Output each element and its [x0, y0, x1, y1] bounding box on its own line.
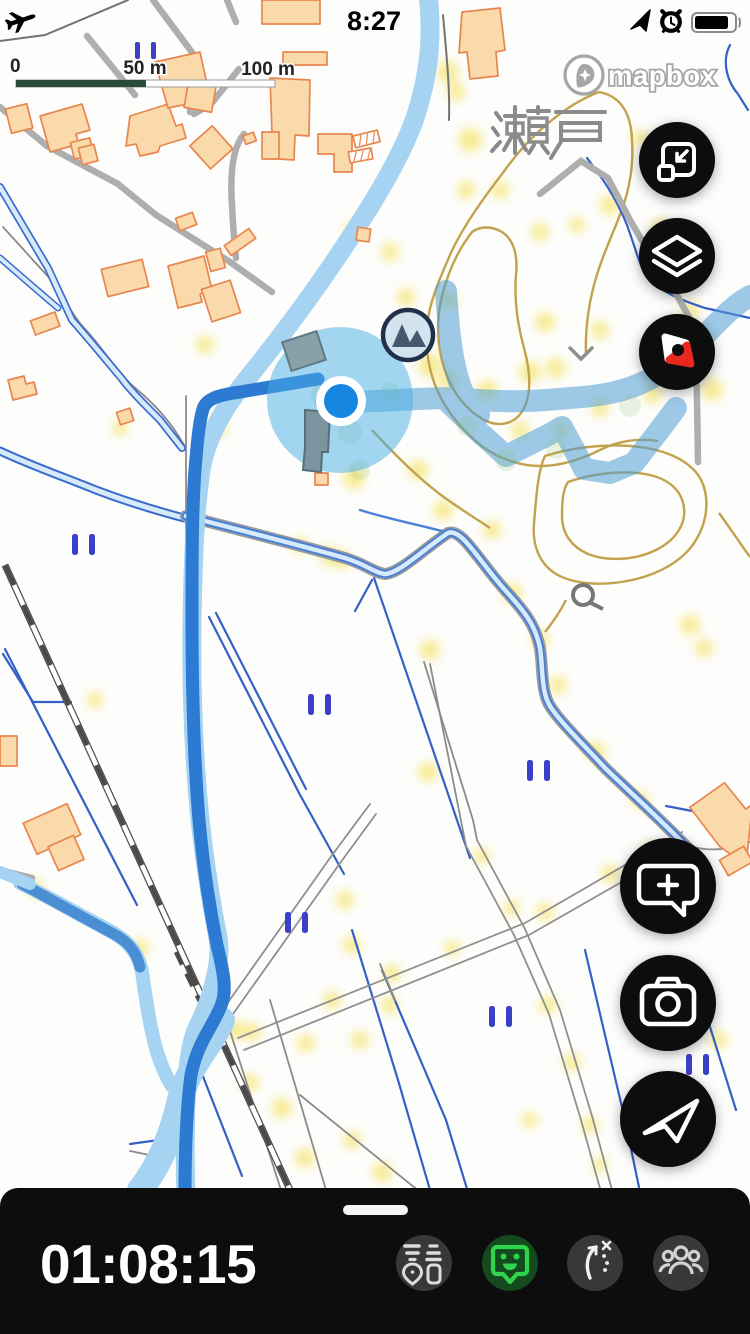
svg-text:01:08:15: 01:08:15 — [40, 1233, 256, 1295]
svg-text:0: 0 — [10, 56, 21, 77]
svg-text:50 m: 50 m — [123, 58, 166, 79]
svg-text:mapbox: mapbox — [608, 60, 717, 91]
svg-text:100 m: 100 m — [241, 59, 295, 80]
svg-text:8:27: 8:27 — [347, 6, 401, 36]
